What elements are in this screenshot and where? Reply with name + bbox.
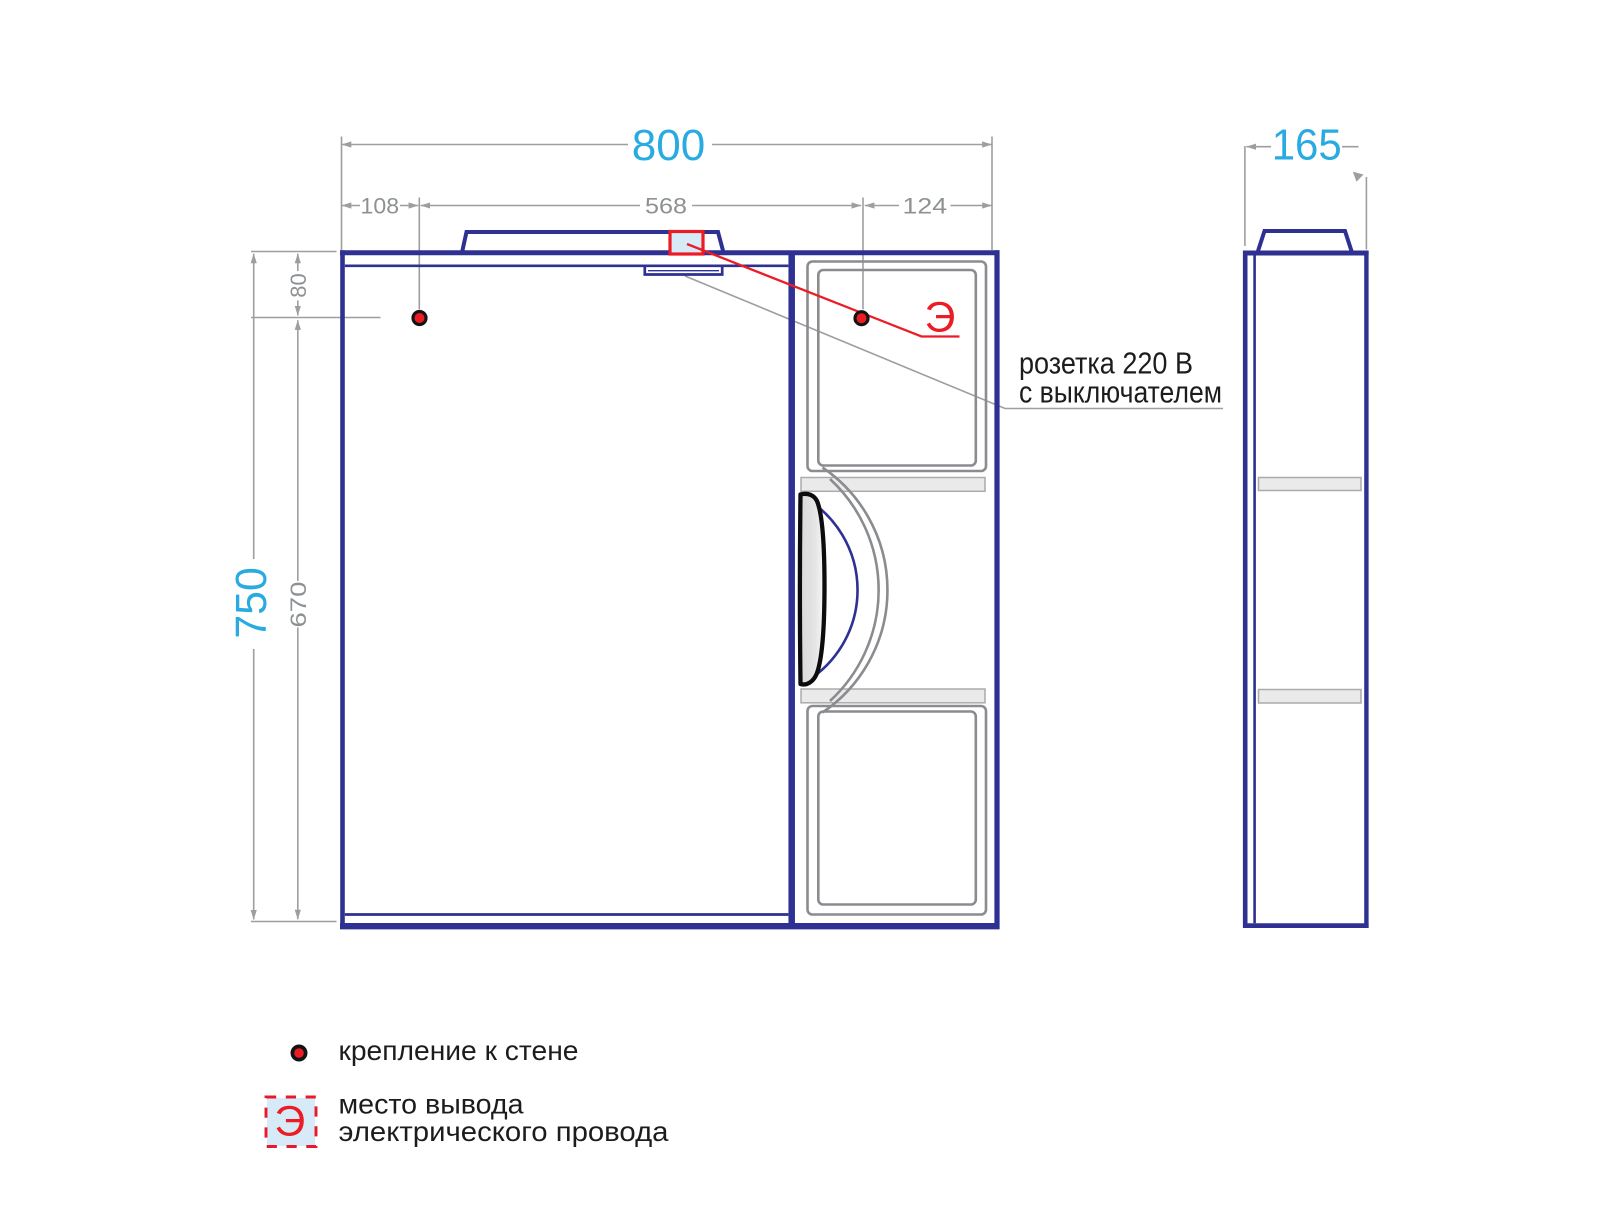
svg-text:750: 750 [227, 567, 276, 639]
svg-text:Э: Э [925, 294, 956, 342]
svg-text:124: 124 [903, 194, 948, 219]
svg-text:568: 568 [645, 194, 687, 219]
svg-text:165: 165 [1272, 121, 1342, 170]
svg-text:место вывода: место вывода [339, 1089, 524, 1120]
svg-text:800: 800 [632, 121, 706, 170]
svg-text:80: 80 [286, 273, 311, 297]
svg-text:Э: Э [274, 1098, 305, 1146]
svg-text:108: 108 [361, 194, 400, 219]
svg-text:с выключателем: с выключателем [1019, 375, 1222, 410]
svg-text:670: 670 [286, 582, 311, 628]
svg-text:крепление к стене: крепление к стене [339, 1035, 579, 1066]
svg-text:электрического провода: электрического провода [339, 1116, 669, 1147]
